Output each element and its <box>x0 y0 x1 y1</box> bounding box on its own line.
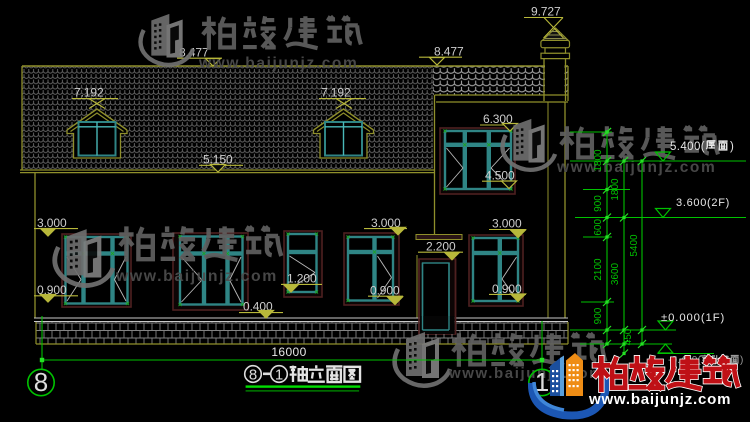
svg-text:±0.000(1F): ±0.000(1F) <box>661 312 725 324</box>
svg-text:1800: 1800 <box>610 178 621 201</box>
svg-text:5.400(: 5.400( <box>670 141 705 153</box>
svg-text:1800: 1800 <box>593 149 604 172</box>
svg-text:): ) <box>740 355 743 366</box>
svg-text:8.477: 8.477 <box>434 45 464 59</box>
svg-text:9.727: 9.727 <box>531 5 561 19</box>
svg-text:3.000: 3.000 <box>492 217 522 231</box>
svg-text:1.200: 1.200 <box>287 271 317 285</box>
svg-text:900: 900 <box>593 307 604 324</box>
svg-text:8: 8 <box>249 367 257 384</box>
svg-text:600: 600 <box>593 219 604 236</box>
svg-text:3.600(2F): 3.600(2F) <box>676 197 730 209</box>
svg-text:www.baijunjz.com: www.baijunjz.com <box>198 55 358 72</box>
svg-text:5400: 5400 <box>629 234 640 257</box>
svg-text:2100: 2100 <box>593 258 604 281</box>
svg-text:2.200: 2.200 <box>426 240 456 254</box>
svg-text:8: 8 <box>34 367 48 397</box>
svg-text:450: 450 <box>623 328 634 345</box>
svg-text:0.900: 0.900 <box>370 283 400 297</box>
svg-text:1: 1 <box>275 367 283 384</box>
svg-text:16000: 16000 <box>271 345 306 359</box>
svg-text:www.baijunjz.com: www.baijunjz.com <box>115 268 278 285</box>
svg-text:7.192: 7.192 <box>321 86 351 100</box>
svg-text:): ) <box>730 141 734 153</box>
svg-text:www.baijunjz.com: www.baijunjz.com <box>588 391 731 408</box>
svg-text:3600: 3600 <box>610 262 621 285</box>
svg-text:7.192: 7.192 <box>74 86 104 100</box>
svg-text:900: 900 <box>593 195 604 212</box>
